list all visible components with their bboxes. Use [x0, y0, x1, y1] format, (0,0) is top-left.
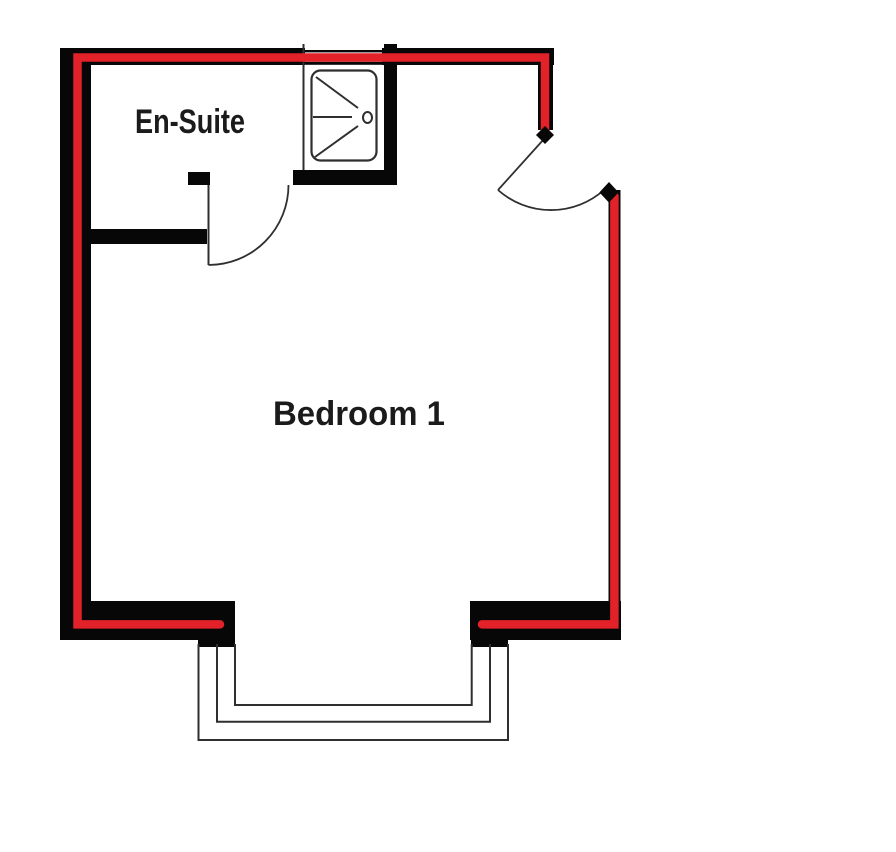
ensuite-door-jamb	[188, 172, 210, 185]
ensuite-door	[209, 185, 289, 265]
bedroom-door-swing-arc	[498, 190, 604, 210]
bedroom-door	[498, 139, 604, 210]
ensuite-lower-wall	[90, 229, 207, 244]
window-strip-top-line	[303, 50, 384, 52]
shower-wall	[384, 44, 397, 185]
ensuite-door-swing-arc	[209, 185, 289, 265]
floorplan: En-Suite Bedroom 1	[0, 0, 896, 852]
ensuite-label: En-Suite	[135, 103, 245, 141]
bedroom-door-leaf	[498, 139, 544, 190]
window-strip-bottom-line	[303, 62, 384, 65]
door-stop-markers	[536, 126, 619, 203]
floorplan-canvas: En-Suite Bedroom 1	[0, 0, 896, 852]
bay-window-middle	[217, 644, 490, 722]
ensuite-upper-wall	[293, 170, 397, 185]
route-line-right	[482, 196, 614, 624]
bay-window-inner	[235, 644, 472, 705]
bay-window	[199, 644, 509, 740]
bay-window-outer	[199, 644, 509, 740]
bedroom-label: Bedroom 1	[273, 395, 445, 433]
shower-tray	[312, 71, 377, 161]
